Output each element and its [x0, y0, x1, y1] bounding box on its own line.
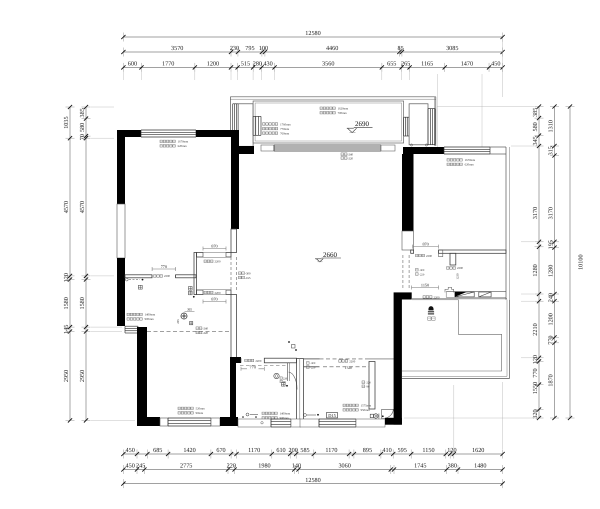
svg-text:200: 200 [289, 447, 298, 454]
svg-text:870: 870 [211, 243, 217, 248]
svg-text:1230: 1230 [456, 273, 460, 280]
svg-text:280: 280 [253, 61, 262, 68]
svg-text:220: 220 [227, 463, 236, 470]
svg-text:900mm: 900mm [145, 317, 155, 321]
svg-text:1670mm: 1670mm [178, 140, 189, 144]
svg-text:380: 380 [448, 463, 457, 470]
svg-text:140: 140 [292, 463, 301, 470]
svg-text:450: 450 [126, 447, 135, 454]
svg-text:85: 85 [398, 45, 404, 52]
svg-text:1870: 1870 [548, 374, 555, 386]
svg-text:450: 450 [491, 61, 500, 68]
svg-text:12580: 12580 [305, 30, 320, 37]
svg-text:2200: 2200 [349, 359, 356, 363]
svg-text:2950: 2950 [63, 370, 70, 382]
svg-text:145: 145 [63, 325, 70, 334]
svg-text:1980: 1980 [258, 463, 270, 470]
svg-text:410: 410 [382, 447, 391, 454]
svg-text:1580: 1580 [63, 297, 70, 309]
svg-text:385: 385 [532, 108, 539, 117]
svg-text:1280: 1280 [532, 264, 539, 276]
svg-text:4570: 4570 [79, 201, 86, 213]
svg-text:-90: -90 [366, 385, 370, 389]
svg-text:2200: 2200 [215, 291, 222, 295]
svg-text:1150: 1150 [421, 282, 429, 287]
svg-text:685: 685 [153, 447, 162, 454]
svg-text:580: 580 [79, 123, 86, 132]
svg-text:2200: 2200 [164, 274, 171, 278]
svg-text:595: 595 [398, 447, 407, 454]
svg-text:770: 770 [532, 368, 539, 377]
svg-text:385: 385 [79, 108, 86, 117]
svg-text:1745: 1745 [414, 463, 426, 470]
svg-text:315: 315 [548, 146, 555, 155]
svg-text:4570: 4570 [63, 201, 70, 213]
svg-text:1760mm: 1760mm [280, 122, 291, 126]
svg-text:600: 600 [128, 61, 137, 68]
svg-text:1575mm: 1575mm [361, 404, 372, 408]
svg-text:950mm: 950mm [361, 408, 371, 412]
svg-text:1620: 1620 [472, 447, 484, 454]
svg-text:3085: 3085 [446, 45, 458, 52]
svg-text:120: 120 [447, 447, 456, 454]
svg-text:1520: 1520 [345, 366, 352, 370]
svg-text:760mm: 760mm [280, 131, 290, 135]
svg-text:670: 670 [216, 447, 225, 454]
svg-text:3170: 3170 [548, 207, 555, 219]
svg-text:120: 120 [63, 273, 70, 282]
svg-text:-165: -165 [245, 276, 251, 280]
svg-text:1035: 1035 [63, 116, 70, 128]
svg-text:12580: 12580 [305, 477, 320, 484]
svg-text:1770: 1770 [162, 61, 174, 68]
svg-text:655: 655 [387, 61, 396, 68]
svg-text:895: 895 [363, 447, 372, 454]
svg-text:870: 870 [211, 296, 217, 301]
svg-text:265: 265 [401, 61, 410, 68]
svg-text:240: 240 [548, 293, 555, 302]
svg-text:205: 205 [176, 319, 180, 324]
svg-text:700mm: 700mm [338, 111, 348, 115]
svg-text:120: 120 [532, 355, 539, 364]
svg-text:1280: 1280 [548, 265, 555, 277]
svg-text:100: 100 [259, 45, 268, 52]
svg-text:1170: 1170 [248, 447, 260, 454]
svg-text:320: 320 [532, 409, 539, 418]
svg-text:230: 230 [230, 45, 239, 52]
svg-text:520mm: 520mm [196, 407, 206, 411]
svg-text:10100: 10100 [578, 254, 585, 269]
svg-text:900mm: 900mm [280, 416, 290, 420]
svg-text:1470: 1470 [461, 61, 473, 68]
svg-text:450: 450 [126, 463, 135, 470]
svg-text:2690: 2690 [355, 120, 370, 128]
svg-text:70: 70 [79, 134, 86, 140]
svg-text:2200: 2200 [457, 266, 464, 270]
svg-text:345: 345 [532, 136, 539, 145]
svg-text:770mm: 770mm [280, 127, 290, 131]
svg-text:1310: 1310 [548, 120, 555, 132]
svg-text:770: 770 [548, 335, 555, 344]
svg-text:1200: 1200 [207, 61, 219, 68]
svg-text:610: 610 [276, 447, 285, 454]
svg-text:1480: 1480 [474, 463, 486, 470]
svg-text:1165: 1165 [421, 61, 433, 68]
svg-text:1170: 1170 [325, 447, 337, 454]
svg-text:1400mm: 1400mm [145, 313, 156, 317]
svg-text:2200: 2200 [426, 254, 433, 258]
svg-text:620mm: 620mm [178, 144, 188, 148]
svg-text:-220: -220 [310, 365, 316, 369]
svg-text:1420: 1420 [183, 447, 195, 454]
svg-text:770: 770 [161, 264, 167, 269]
svg-text:3560: 3560 [322, 61, 334, 68]
svg-text:195: 195 [548, 240, 555, 249]
svg-text:1200: 1200 [548, 313, 555, 325]
svg-text:795: 795 [245, 45, 254, 52]
svg-text:430: 430 [263, 61, 272, 68]
svg-text:3060: 3060 [338, 463, 350, 470]
svg-text:2200: 2200 [215, 260, 222, 264]
svg-text:-220: -220 [203, 331, 209, 335]
svg-text:90mm: 90mm [196, 411, 204, 415]
svg-text:1580: 1580 [79, 297, 86, 309]
svg-text:2775: 2775 [180, 463, 192, 470]
svg-text:1550: 1550 [532, 382, 539, 394]
svg-text:3570: 3570 [171, 45, 183, 52]
svg-text:2200: 2200 [255, 359, 262, 363]
svg-text:1150: 1150 [422, 447, 434, 454]
svg-text:-220: -220 [348, 156, 354, 160]
svg-text:1620mm: 1620mm [338, 107, 349, 111]
svg-text:365: 365 [187, 307, 192, 311]
svg-text:620mm: 620mm [465, 163, 475, 167]
svg-text:1670mm: 1670mm [465, 158, 476, 162]
svg-text:870: 870 [422, 241, 428, 246]
svg-text:515: 515 [241, 61, 250, 68]
svg-text:245: 245 [136, 463, 145, 470]
svg-text:D15: D15 [328, 413, 336, 418]
svg-text:3170: 3170 [532, 207, 539, 219]
svg-text:2210: 2210 [532, 323, 539, 335]
svg-text:-220: -220 [419, 272, 425, 276]
svg-text:4460: 4460 [326, 45, 338, 52]
svg-text:2950: 2950 [79, 370, 86, 382]
svg-text:585: 585 [300, 447, 309, 454]
svg-text:580: 580 [532, 122, 539, 131]
svg-text:1400mm: 1400mm [280, 412, 291, 416]
